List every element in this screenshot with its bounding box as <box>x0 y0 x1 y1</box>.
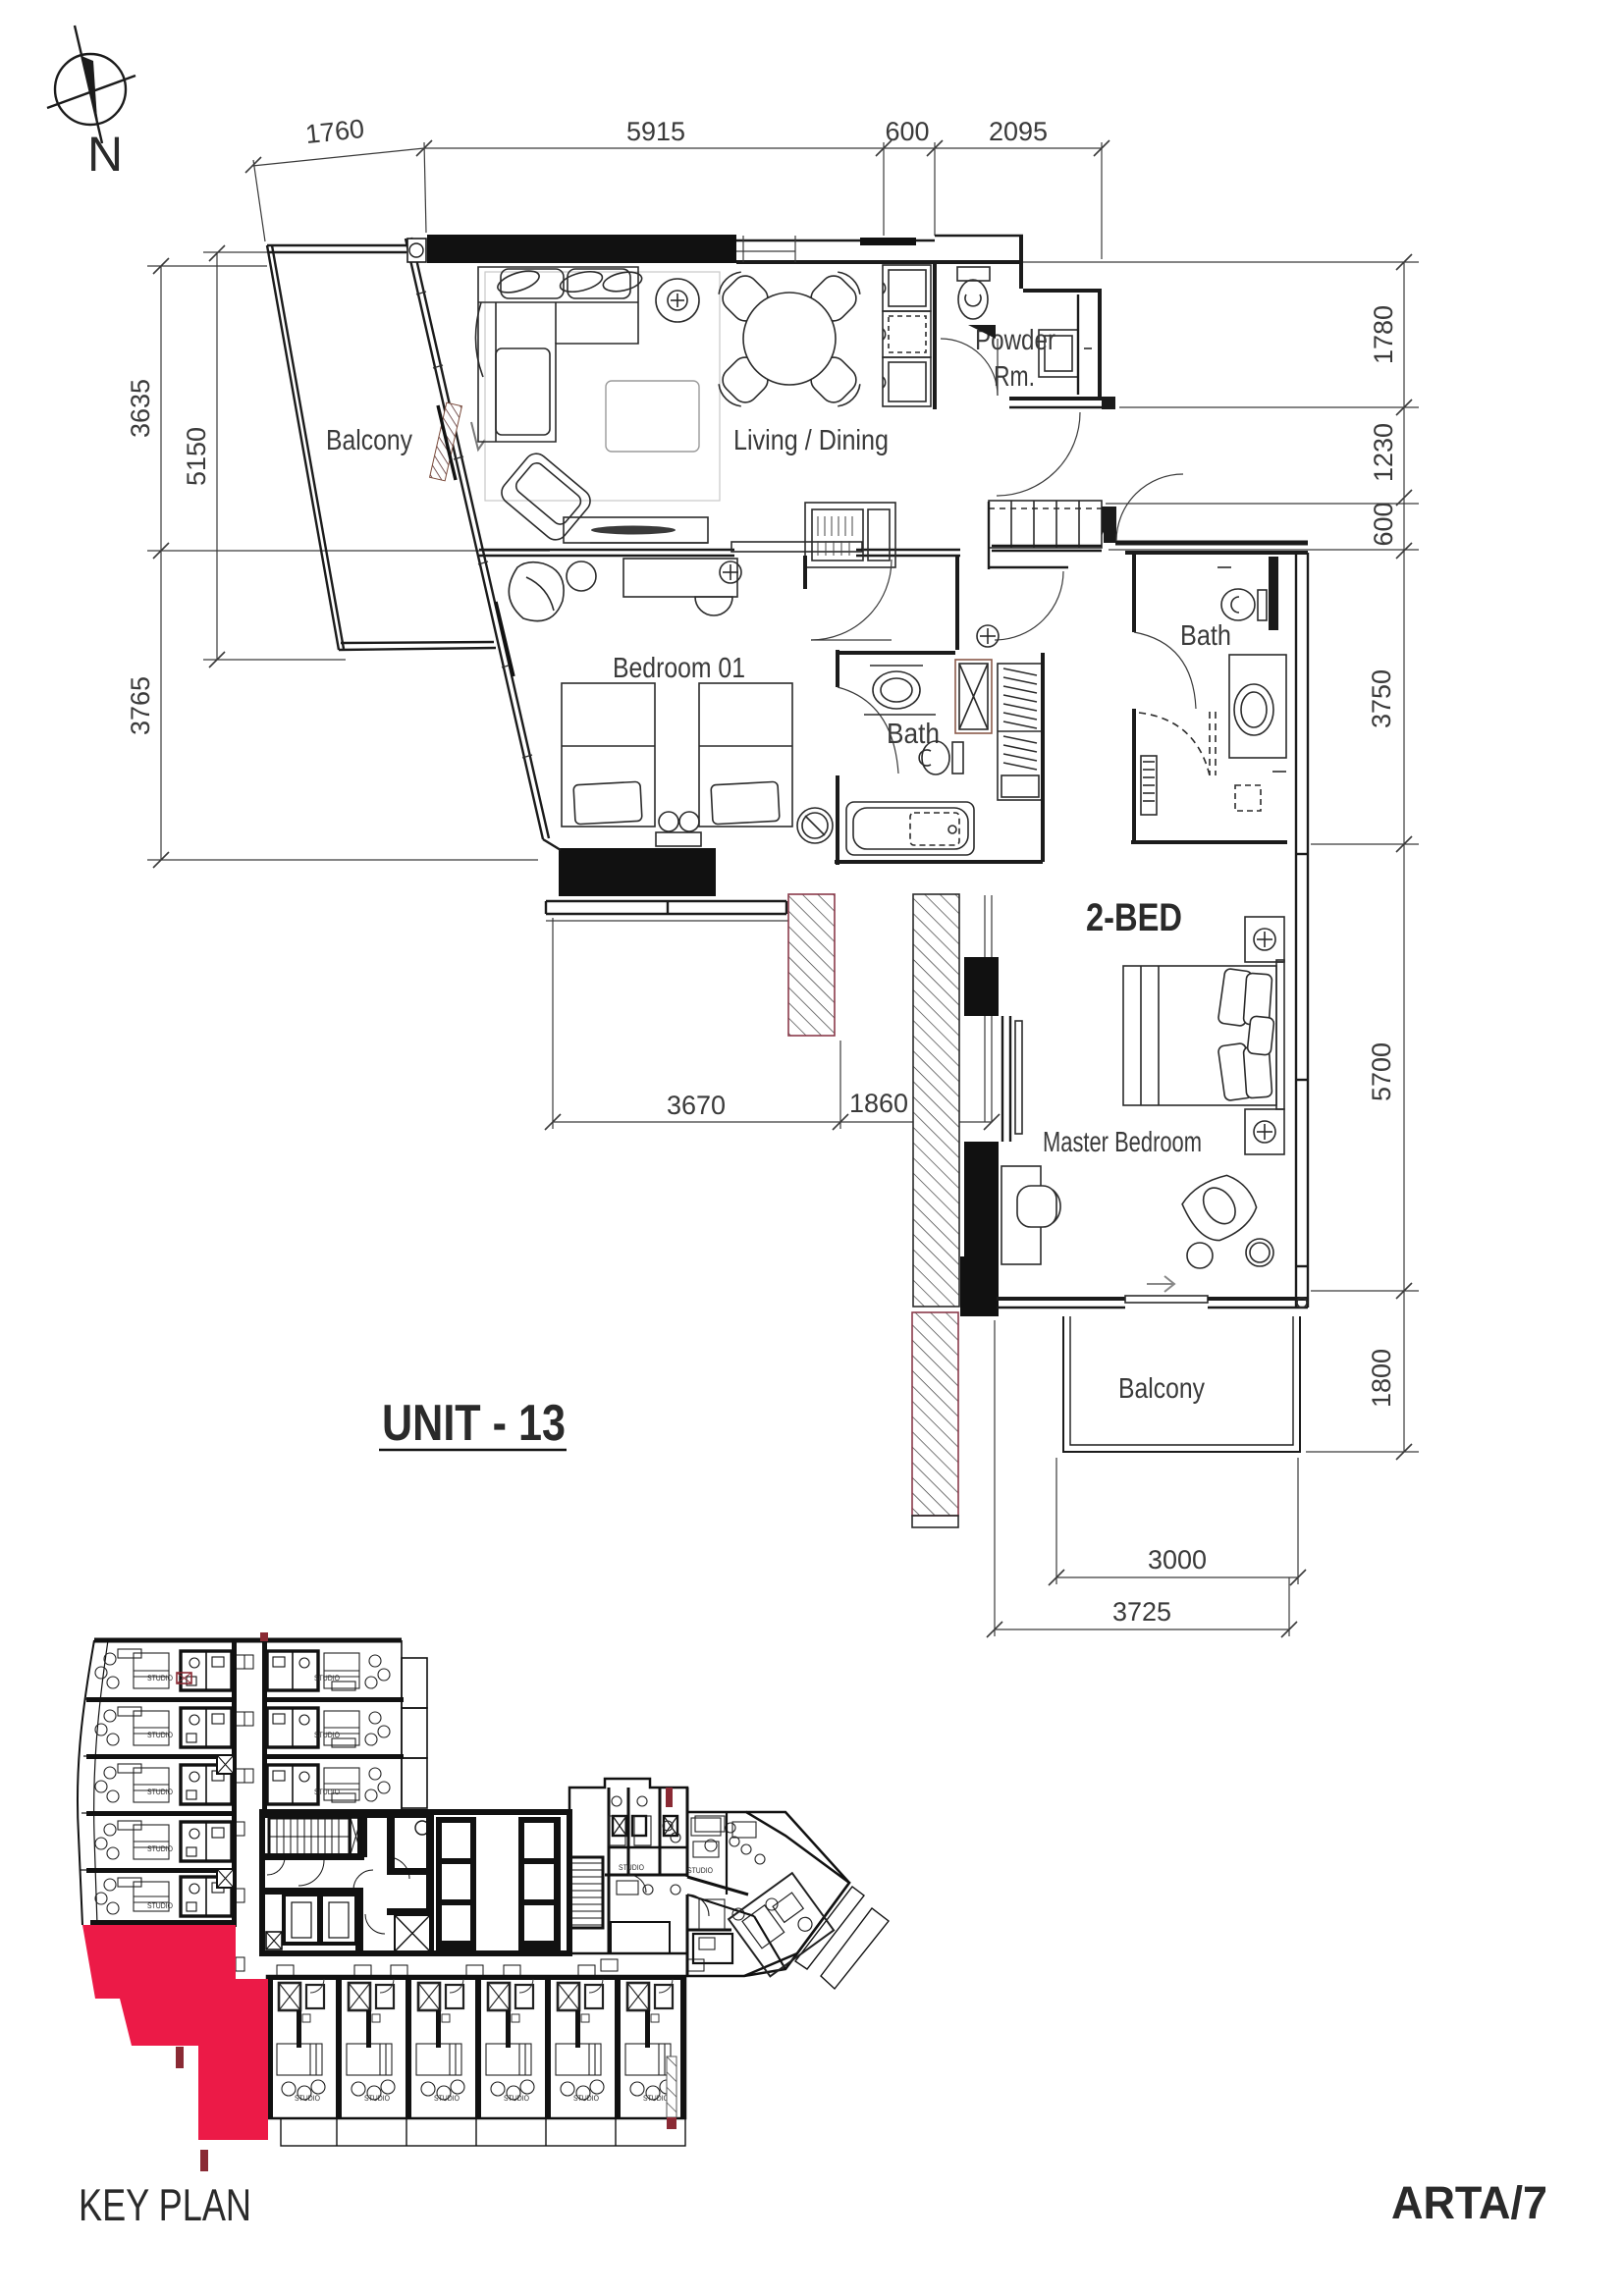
svg-text:STUDIO: STUDIO <box>147 1901 173 1910</box>
svg-text:Balcony: Balcony <box>326 425 412 456</box>
svg-text:Bath: Bath <box>1180 620 1231 652</box>
svg-text:1760: 1760 <box>304 114 366 149</box>
svg-text:STUDIO: STUDIO <box>295 2094 320 2103</box>
svg-text:1800: 1800 <box>1367 1349 1396 1408</box>
svg-text:1780: 1780 <box>1369 305 1398 364</box>
svg-text:STUDIO: STUDIO <box>147 1788 173 1796</box>
svg-text:3750: 3750 <box>1367 669 1396 728</box>
svg-text:N: N <box>87 127 123 182</box>
svg-text:600: 600 <box>1369 502 1398 546</box>
svg-text:KEY PLAN: KEY PLAN <box>79 2179 251 2230</box>
svg-text:STUDIO: STUDIO <box>643 2094 669 2103</box>
svg-text:STUDIO: STUDIO <box>314 1674 340 1682</box>
svg-text:2-BED: 2-BED <box>1086 896 1182 939</box>
svg-text:3635: 3635 <box>126 379 155 438</box>
svg-text:1230: 1230 <box>1369 423 1398 482</box>
svg-text:STUDIO: STUDIO <box>314 1788 340 1796</box>
svg-text:3765: 3765 <box>126 676 155 735</box>
svg-text:3000: 3000 <box>1148 1545 1207 1575</box>
svg-text:1860: 1860 <box>849 1089 908 1118</box>
svg-text:STUDIO: STUDIO <box>573 2094 599 2103</box>
svg-text:2095: 2095 <box>989 117 1048 146</box>
svg-text:3725: 3725 <box>1112 1597 1171 1627</box>
svg-text:Living / Dining: Living / Dining <box>733 425 889 456</box>
svg-text:Rm.: Rm. <box>994 361 1035 393</box>
svg-text:STUDIO: STUDIO <box>364 2094 390 2103</box>
svg-text:5915: 5915 <box>626 117 685 146</box>
svg-text:ARTA/7: ARTA/7 <box>1391 2176 1547 2228</box>
svg-text:STUDIO: STUDIO <box>147 1731 173 1739</box>
svg-text:Master Bedroom: Master Bedroom <box>1043 1127 1202 1158</box>
svg-text:Bath: Bath <box>887 719 940 750</box>
svg-text:STUDIO: STUDIO <box>687 1866 713 1875</box>
svg-text:5700: 5700 <box>1367 1042 1396 1101</box>
svg-text:STUDIO: STUDIO <box>314 1731 340 1739</box>
svg-text:Bedroom 01: Bedroom 01 <box>613 653 745 684</box>
svg-text:STUDIO: STUDIO <box>147 1844 173 1853</box>
svg-text:STUDIO: STUDIO <box>619 1863 644 1872</box>
svg-text:3670: 3670 <box>667 1091 726 1120</box>
svg-text:STUDIO: STUDIO <box>147 1674 173 1682</box>
svg-text:UNIT - 13: UNIT - 13 <box>382 1395 566 1452</box>
svg-text:Balcony: Balcony <box>1118 1373 1205 1405</box>
svg-text:600: 600 <box>885 117 929 146</box>
svg-text:STUDIO: STUDIO <box>504 2094 529 2103</box>
svg-text:5150: 5150 <box>182 427 211 486</box>
svg-text:STUDIO: STUDIO <box>434 2094 460 2103</box>
